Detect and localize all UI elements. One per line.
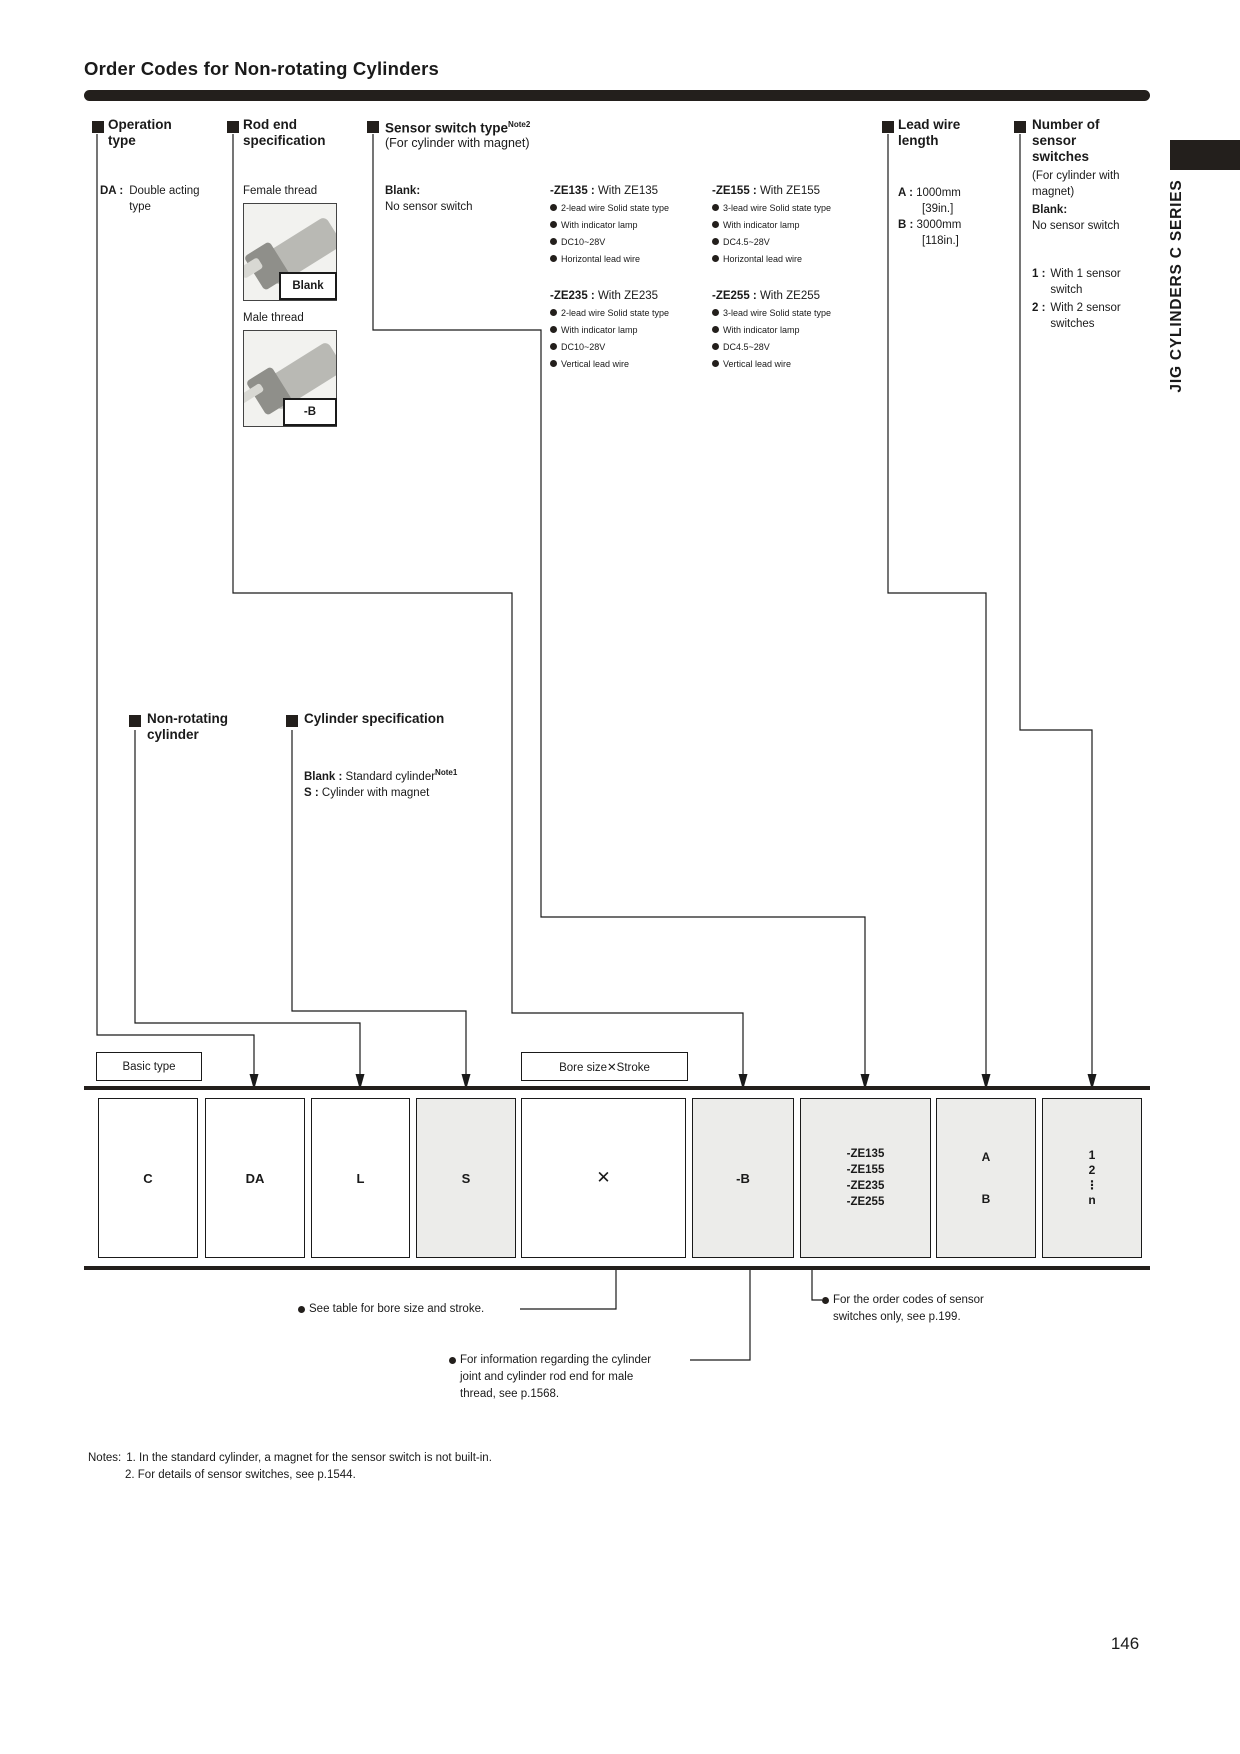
bullet-icon bbox=[449, 1357, 456, 1364]
catalog-page: Order Codes for Non-rotating Cylinders J… bbox=[0, 0, 1240, 1754]
bullet-icon bbox=[550, 255, 557, 262]
bullet-icon bbox=[712, 326, 719, 333]
sensor-count-item-1: 1 : With 1 sensor switch bbox=[1032, 266, 1121, 298]
sensor-group-ze155: -ZE155 : With ZE155 3-lead wire Solid st… bbox=[712, 183, 831, 267]
male-thread-label: Male thread bbox=[243, 310, 304, 326]
bullet-icon bbox=[550, 326, 557, 333]
non-rotating-title: Non-rotating cylinder bbox=[147, 711, 228, 743]
bullet-icon bbox=[550, 238, 557, 245]
feature-item: Vertical lead wire bbox=[712, 355, 831, 372]
feature-item: 2-lead wire Solid state type bbox=[550, 199, 669, 216]
operation-item-code: DA : bbox=[100, 183, 123, 215]
bullet-icon bbox=[712, 309, 719, 316]
bore-size-stroke-label: Bore size✕Stroke bbox=[521, 1052, 688, 1081]
rod-end-title: Rod end specification bbox=[243, 117, 326, 149]
basic-type-label: Basic type bbox=[96, 1052, 202, 1081]
feature-item: 3-lead wire Solid state type bbox=[712, 199, 831, 216]
bullet-icon bbox=[550, 309, 557, 316]
bullet-icon bbox=[550, 343, 557, 350]
bullet-icon bbox=[712, 204, 719, 211]
code-box-basic: C bbox=[98, 1098, 198, 1258]
code-box-rod-end: -B bbox=[692, 1098, 794, 1258]
feature-item: DC4.5~28V bbox=[712, 233, 831, 250]
sensor-blank-option: Blank: No sensor switch bbox=[385, 183, 473, 215]
sensor-count-subtitle: (For cylinder with magnet) bbox=[1032, 168, 1120, 200]
feature-item: DC4.5~28V bbox=[712, 338, 831, 355]
page-number: 146 bbox=[1090, 1634, 1160, 1654]
sensor-count-bullet-square bbox=[1014, 121, 1026, 133]
bullet-icon bbox=[298, 1306, 305, 1313]
bullet-icon bbox=[712, 238, 719, 245]
bullet-icon bbox=[712, 255, 719, 262]
feature-item: With indicator lamp bbox=[550, 216, 669, 233]
operation-item: DA : Double acting type bbox=[100, 183, 200, 215]
notes-block: Notes: 1. In the standard cylinder, a ma… bbox=[88, 1450, 492, 1484]
feature-item: DC10~28V bbox=[550, 233, 669, 250]
feature-item: With indicator lamp bbox=[712, 216, 831, 233]
cyl-spec-note-ref: Note1 bbox=[435, 768, 457, 777]
female-thread-code-tag: Blank bbox=[279, 272, 337, 300]
code-box-non-rotating: L bbox=[311, 1098, 410, 1258]
sensor-count-blank: Blank: No sensor switch bbox=[1032, 202, 1120, 234]
feature-item: 3-lead wire Solid state type bbox=[712, 304, 831, 321]
code-box-cyl-spec: S bbox=[416, 1098, 516, 1258]
bullet-icon bbox=[550, 204, 557, 211]
feature-item: DC10~28V bbox=[550, 338, 669, 355]
female-thread-label: Female thread bbox=[243, 183, 317, 199]
non-rotating-bullet-square bbox=[129, 715, 141, 727]
feature-item: Horizontal lead wire bbox=[712, 250, 831, 267]
footnote-sensor: For the order codes of sensor switches o… bbox=[822, 1292, 984, 1326]
feature-item: With indicator lamp bbox=[550, 321, 669, 338]
sensor-count-title: Number of sensor switches bbox=[1032, 117, 1100, 165]
lead-wire-items: A : 1000mm [39in.] B : 3000mm [118in.] bbox=[898, 185, 961, 249]
code-box-sensor-type: -ZE135 -ZE155 -ZE235 -ZE255 bbox=[800, 1098, 931, 1258]
bullet-icon bbox=[550, 221, 557, 228]
footnote-rod-end: For information regarding the cylinder j… bbox=[449, 1352, 651, 1403]
lead-wire-title: Lead wire length bbox=[898, 117, 960, 149]
operation-bullet-square bbox=[92, 121, 104, 133]
bullet-icon bbox=[712, 221, 719, 228]
code-row-bottom-rule bbox=[84, 1266, 1150, 1270]
sensor-count-item-2: 2 : With 2 sensor switches bbox=[1032, 300, 1121, 332]
feature-item: 2-lead wire Solid state type bbox=[550, 304, 669, 321]
rod-end-bullet-square bbox=[227, 121, 239, 133]
cyl-spec-bullet-square bbox=[286, 715, 298, 727]
bullet-icon bbox=[550, 360, 557, 367]
operation-item-desc: Double acting type bbox=[129, 183, 199, 215]
operation-title: Operation type bbox=[108, 117, 172, 149]
sensor-group-ze235: -ZE235 : With ZE235 2-lead wire Solid st… bbox=[550, 288, 669, 372]
feature-item: Horizontal lead wire bbox=[550, 250, 669, 267]
cyl-spec-title: Cylinder specification bbox=[304, 711, 444, 727]
feature-item: With indicator lamp bbox=[712, 321, 831, 338]
bullet-icon bbox=[822, 1297, 829, 1304]
sensor-group-ze255: -ZE255 : With ZE255 3-lead wire Solid st… bbox=[712, 288, 831, 372]
footnote-bore: See table for bore size and stroke. bbox=[298, 1301, 484, 1318]
sensor-type-bullet-square bbox=[367, 121, 379, 133]
bullet-icon bbox=[712, 343, 719, 350]
feature-item: Vertical lead wire bbox=[550, 355, 669, 372]
code-row-top-rule bbox=[84, 1086, 1150, 1090]
sensor-type-title: Sensor switch typeNote2 bbox=[385, 117, 530, 137]
sensor-group-ze135: -ZE135 : With ZE135 2-lead wire Solid st… bbox=[550, 183, 669, 267]
code-box-lead-wire: A B bbox=[936, 1098, 1036, 1258]
sensor-type-subtitle: (For cylinder with magnet) bbox=[385, 135, 530, 151]
sensor-note-ref: Note2 bbox=[508, 120, 530, 129]
code-box-sensor-count: 1 2 ⋮ n bbox=[1042, 1098, 1142, 1258]
lead-wire-bullet-square bbox=[882, 121, 894, 133]
cyl-spec-options: Blank : Standard cylinderNote1 S : Cylin… bbox=[304, 765, 457, 801]
bullet-icon bbox=[712, 360, 719, 367]
code-box-operation: DA bbox=[205, 1098, 305, 1258]
code-box-bore-stroke: ✕ bbox=[521, 1098, 686, 1258]
male-thread-code-tag: -B bbox=[283, 398, 337, 426]
